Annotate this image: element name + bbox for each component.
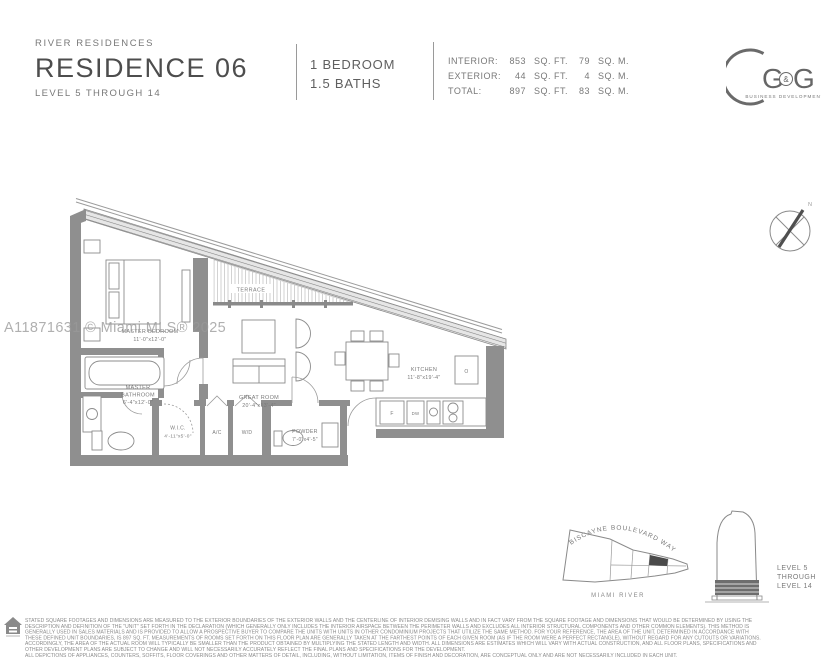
- master-bedroom-dims: 11'-0"x12'-0": [133, 337, 166, 343]
- area-sqft-unit: SQ. FT.: [532, 71, 576, 81]
- dresser: [182, 270, 190, 322]
- area-row-label: TOTAL:: [448, 86, 506, 96]
- master-bath-label-2: BATHROOM: [121, 393, 155, 399]
- area-sqft-unit: SQ. FT.: [532, 86, 576, 96]
- fridge-label: F: [390, 411, 393, 417]
- unit-grid: [610, 540, 686, 581]
- master-bath-label-1: MASTER: [126, 385, 151, 391]
- area-table: INTERIOR: 853 SQ. FT. 79 SQ. M. EXTERIOR…: [448, 56, 636, 96]
- logo-ampersand: &: [783, 75, 789, 84]
- river-label: MIAMI RIVER: [591, 593, 645, 599]
- page-title: RESIDENCE 06: [35, 53, 248, 84]
- area-sqft: 853: [506, 56, 532, 66]
- equal-housing-logo: [3, 616, 23, 638]
- area-sqm: 79: [576, 56, 596, 66]
- oven-label: O: [464, 369, 468, 375]
- burner: [449, 414, 457, 422]
- area-sqm-unit: SQ. M.: [596, 56, 636, 66]
- logo-subtext: BUSINESS DEVELOPMENTS: [745, 94, 821, 99]
- svg-text:THROUGH: THROUGH: [777, 574, 816, 581]
- lounge-chair: [296, 352, 311, 381]
- dishwasher-label: DW: [412, 411, 420, 416]
- street-label: BISCAYNE BOULEVARD WAY: [568, 525, 677, 554]
- wd-label: W/D: [242, 430, 253, 436]
- logo-letter-g2: G: [793, 63, 815, 94]
- sink-basin: [430, 408, 438, 416]
- header-divider-1: [296, 44, 297, 100]
- dining-chair: [351, 381, 364, 391]
- area-sqft-unit: SQ. FT.: [532, 56, 576, 66]
- kitchen-label: KITCHEN: [411, 367, 437, 373]
- disclaimer-line: STATED SQUARE FOOTAGES AND DIMENSIONS AR…: [25, 618, 823, 624]
- bedroom-count: 1 BEDROOM: [310, 55, 395, 74]
- great-room-dims: 20'-4"x13'-4": [242, 403, 276, 409]
- coffee-table: [242, 320, 275, 353]
- floorplan-sheet: RIVER RESIDENCES RESIDENCE 06 LEVEL 5 TH…: [0, 0, 825, 661]
- level-band: [715, 580, 759, 595]
- dining-chair: [389, 354, 399, 367]
- dining-table: [346, 342, 388, 380]
- key-plan: BISCAYNE BOULEVARD WAY MIAMI RIVER LEVEL…: [555, 503, 825, 620]
- svg-text:LEVEL 5: LEVEL 5: [777, 565, 808, 572]
- pillow: [109, 292, 119, 318]
- dining-chair: [370, 331, 383, 341]
- bath-count: 1.5 BATHS: [310, 74, 395, 93]
- tower-base: [712, 596, 762, 600]
- area-sqm: 4: [576, 71, 596, 81]
- svg-text:LEVEL 14: LEVEL 14: [777, 583, 812, 590]
- area-sqm-unit: SQ. M.: [596, 71, 636, 81]
- area-row-label: INTERIOR:: [448, 56, 506, 66]
- terrace-label: TERRACE: [237, 288, 266, 294]
- lounge-chair: [296, 319, 311, 348]
- level-range-labels: LEVEL 5 THROUGH LEVEL 14: [777, 565, 816, 590]
- developer-logo: G & G BUSINESS DEVELOPMENTS: [726, 46, 821, 108]
- terrace-deck: [214, 260, 353, 303]
- legal-disclaimer: STATED SQUARE FOOTAGES AND DIMENSIONS AR…: [25, 618, 823, 659]
- wic-label: W.I.C.: [170, 426, 185, 432]
- powder-sink: [322, 423, 338, 447]
- title-block: RIVER RESIDENCES RESIDENCE 06 LEVEL 5 TH…: [35, 38, 248, 99]
- area-sqm: 83: [576, 86, 596, 96]
- kitchen-dims: 11'-8"x19'-4": [407, 375, 440, 381]
- dining-chair: [351, 331, 364, 341]
- disclaimer-line: ALL DEPICTIONS OF APPLIANCES, COUNTERS, …: [25, 653, 823, 659]
- wic-dims: 4'-11"x5'-0": [164, 434, 191, 440]
- powder-label: POWDER: [292, 429, 318, 435]
- toilet-tank: [92, 431, 102, 450]
- pillow: [109, 263, 119, 289]
- powder-dims: 7'-0"x4'-5": [292, 437, 318, 443]
- sink: [87, 409, 98, 420]
- bed-bath-block: 1 BEDROOM 1.5 BATHS: [310, 55, 395, 93]
- compass-needle-icon: [779, 210, 803, 247]
- bathtub-inner: [89, 361, 160, 385]
- toilet: [108, 432, 134, 450]
- level-range: LEVEL 5 THROUGH 14: [35, 88, 248, 99]
- north-label: N: [808, 202, 812, 208]
- nightstand: [84, 240, 100, 253]
- area-sqft: 44: [506, 71, 532, 81]
- master-bath-dims: 6'-4"x12'-0": [123, 400, 153, 406]
- powder-toilet-tank: [274, 431, 282, 446]
- north-compass-icon: N: [763, 196, 823, 258]
- area-sqft: 897: [506, 86, 532, 96]
- dining-chair: [370, 381, 383, 391]
- burner: [448, 403, 458, 413]
- dining-chair: [335, 352, 345, 365]
- ac-label: A/C: [212, 430, 221, 436]
- mls-watermark: A11871631 © Miami MLS® 2025: [4, 320, 226, 336]
- great-room-label: GREAT ROOM: [239, 395, 279, 401]
- header-divider-2: [433, 42, 434, 100]
- project-name: RIVER RESIDENCES: [35, 38, 248, 49]
- area-sqm-unit: SQ. M.: [596, 86, 636, 96]
- area-row-label: EXTERIOR:: [448, 71, 506, 81]
